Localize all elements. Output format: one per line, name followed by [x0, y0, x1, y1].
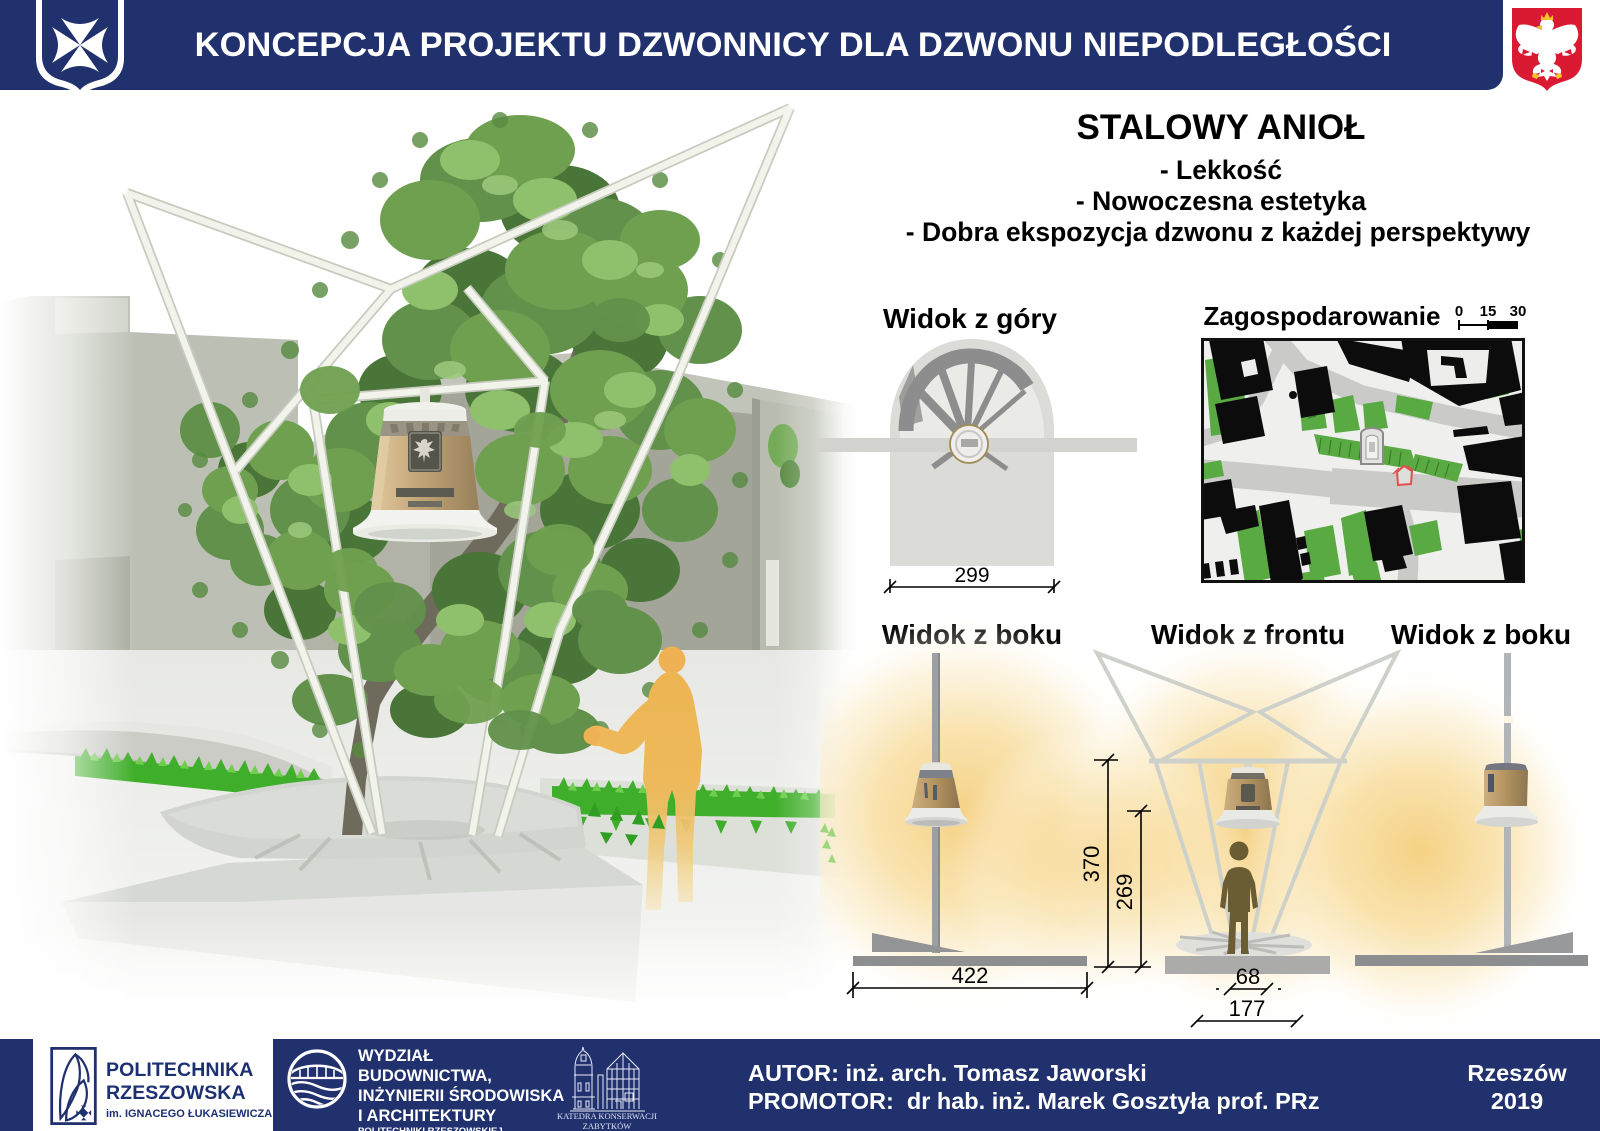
svg-text:422: 422: [952, 963, 989, 988]
svg-text:299: 299: [954, 564, 989, 587]
svg-text:269: 269: [1112, 874, 1137, 911]
svg-text:15: 15: [1480, 303, 1497, 320]
svg-text:370: 370: [1079, 846, 1104, 883]
svg-text:0: 0: [1455, 303, 1463, 320]
svg-text:177: 177: [1229, 996, 1266, 1021]
svg-text:68: 68: [1236, 964, 1260, 989]
svg-text:30: 30: [1510, 303, 1527, 320]
